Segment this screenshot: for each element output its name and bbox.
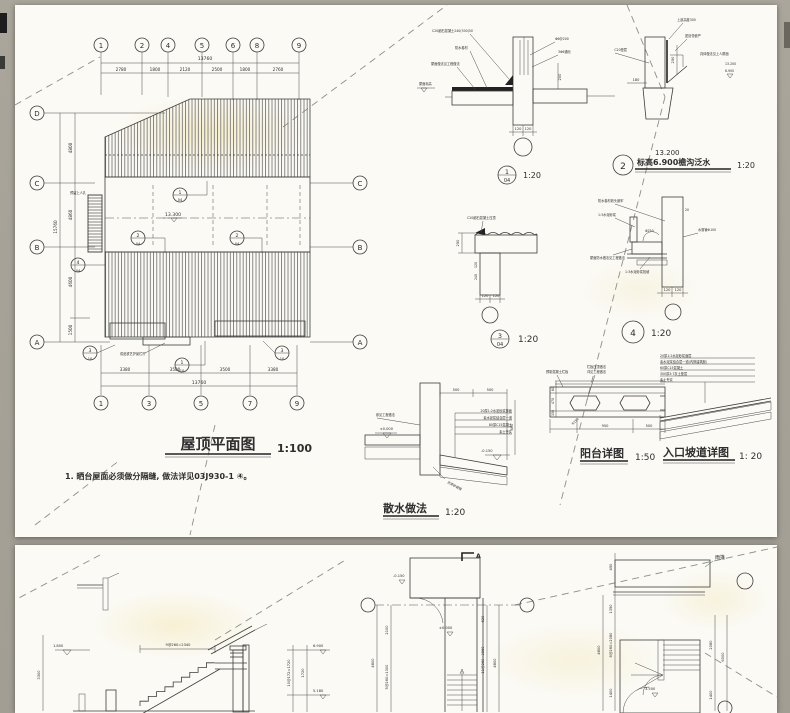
dim: 4800: [68, 142, 73, 153]
dim: 4800: [597, 645, 601, 655]
dim: 120: [664, 288, 672, 292]
dim: 2500: [212, 67, 223, 72]
callout-num: 4: [77, 260, 80, 266]
balcony-label: 详见工程做法: [587, 369, 606, 374]
roof-plan-note: 1. 晒台屋面必须做分隔缝, 做法详见03J930-1 ④。: [65, 471, 251, 481]
dim: 6000: [721, 652, 725, 662]
dim: 3380: [120, 367, 131, 372]
level-text: -0.150: [481, 449, 493, 453]
balcony-label: 预制混凝土栏板: [546, 369, 569, 374]
detail4-label: 防水卷材收头嵌牢: [598, 198, 624, 203]
dim: 3500: [220, 367, 231, 372]
dim: 180: [633, 78, 641, 82]
stair-plan-1: -0.150 ±0.000 A 2100 5@260=1300 4800 620…: [361, 553, 534, 712]
detail1-label: 防水卷材: [455, 45, 469, 50]
dim: 11@260=2860: [481, 646, 485, 674]
level-text: 13.300: [165, 212, 181, 218]
roof-plan-body: 预留上人孔 13.300 成品铁艺护窗栏杆: [70, 99, 310, 356]
roof-plan-scale: 1:100: [277, 442, 312, 455]
wall-fragment: [77, 573, 119, 610]
dim: 4800: [371, 658, 375, 668]
detail2-label: C20垫层: [614, 47, 627, 52]
callout-sheet: 10: [88, 357, 93, 361]
detail1-label: 屋面做法见工程做法: [431, 61, 460, 66]
layer-label: 20厚1:2水泥砂浆面层: [660, 353, 692, 358]
dim: 3380: [268, 367, 279, 372]
detail-3-coping: C20细石混凝土压顶 250 120 240 120 120 3 04 1:20: [456, 215, 538, 348]
level-text: ±0.000: [380, 427, 394, 431]
dim: 1350: [609, 604, 613, 614]
dim: 470: [551, 398, 555, 404]
detail2-title-line1: 13.200: [655, 149, 680, 157]
dim: 1800: [150, 67, 161, 72]
dim: 2780: [116, 67, 127, 72]
dim: 2080: [709, 640, 713, 650]
callout-num: 3: [281, 348, 284, 354]
photo-edge-mark: [0, 56, 5, 69]
detail-1-parapet: C20细石混凝土240(300)50 防水卷材 屋面做法见工程做法 屋面标高 Φ…: [417, 28, 615, 184]
axis-bubble: 7: [248, 400, 252, 408]
axis-bubble: 8: [255, 42, 259, 50]
dim: 1400: [709, 690, 713, 700]
axis-bubble: 5: [200, 42, 204, 50]
callout-num: 2: [137, 233, 140, 239]
callout-num: 2: [236, 233, 239, 239]
stair-plan-2: 雨篷 450 1350 8@260=2080 1400 4800 3.500 2…: [597, 553, 753, 713]
axis-bubble: 1: [99, 42, 103, 50]
dim: 4600: [68, 276, 73, 287]
detail3-callout: 3 04 1:20: [491, 330, 538, 348]
plan-level-mark: 13.300: [163, 212, 185, 222]
dim: 5@260=1300: [385, 664, 389, 690]
mid-section: 10@172=1720 1720 6.900 5.180: [230, 644, 330, 712]
detail2-label: 密封膏嵌严: [685, 33, 701, 38]
dim: 400: [510, 423, 514, 431]
detail1-label: 屋面标高: [419, 81, 432, 86]
callout-num: 1: [179, 190, 182, 196]
photo-edge-mark: [0, 13, 7, 33]
title-scale: 1:50: [635, 453, 655, 463]
axis-bubble: 3: [147, 400, 151, 408]
layer-label: 素土夯实: [660, 377, 673, 382]
detail2-label: 上返高度300: [677, 17, 696, 22]
dim: 10@172=1720: [287, 659, 291, 687]
callout-sheet: 04: [136, 242, 141, 246]
stair-section: 3300 1.800 9@260=2340: [37, 624, 267, 713]
dim: 120: [515, 127, 523, 131]
callout-sheet: 04: [497, 342, 503, 348]
ramp-layers: 20厚1:2水泥砂浆面层 素水泥浆结合层一道(内掺建筑胶) 60厚C15混凝土 …: [660, 353, 755, 403]
callout-sheet: 10: [280, 357, 285, 361]
dim-total-left: 15760: [53, 220, 58, 234]
level-text: 3.500: [645, 687, 656, 691]
dim: 2100: [385, 625, 389, 635]
drain-size: Φ250: [645, 229, 654, 233]
dim-total-top: 13760: [198, 56, 213, 62]
detail2-title: 2 13.200 标高6.900檐沟泛水 1:20: [613, 149, 755, 175]
detail4-label: 20: [685, 208, 689, 212]
detail1-callout: 1 04 1:20: [498, 166, 541, 184]
dim: 620: [481, 615, 485, 623]
canopy-label: 雨篷: [715, 554, 725, 561]
layer-label: 300厚3:7灰土垫层: [660, 371, 687, 376]
dim: 250: [456, 239, 460, 247]
rail-label: 成品铁艺护窗栏杆: [120, 351, 146, 356]
dim: 2120: [180, 67, 191, 72]
detail2-label: 具体做法见上人屋面: [700, 51, 729, 56]
level-text: 1.800: [53, 644, 64, 648]
roof-plan-right-axes: C B A: [310, 176, 367, 349]
dim: 120: [525, 127, 533, 131]
level-text: 13.200: [725, 62, 736, 66]
axis-bubble: A: [35, 339, 40, 347]
section-letter: A: [476, 553, 481, 560]
drawing-sheet-bottom: 3300 1.800 9@260=2340 10@172=1720 1720 6…: [15, 545, 777, 713]
dim: 2760: [273, 67, 284, 72]
title-scale: 1: 20: [739, 452, 762, 462]
axis-bubble: 5: [199, 400, 203, 408]
dim: 450: [609, 563, 613, 571]
sanshui-title: 散水做法 1:20: [383, 501, 465, 519]
detail1-label: 3Φ6通长: [558, 49, 572, 54]
callout-num: 3: [498, 333, 502, 340]
dim: 60: [551, 387, 555, 391]
title-text: 阳台详图: [580, 446, 624, 460]
layer-label: 60厚C15混凝土: [660, 365, 684, 370]
callout-num: 1: [181, 360, 184, 366]
axis-bubble: 9: [295, 400, 299, 408]
detail-2-gutter: 上返高度300 密封膏嵌严 具体做法见上人屋面 C20垫层 180 250 13…: [613, 17, 755, 175]
dim: 3300: [37, 670, 41, 680]
detail3-label: C20细石混凝土压顶: [467, 215, 496, 220]
drawing-sheet-top: 1 2 4 5 6 8 9 13760 2780 1800 2120 2500 …: [15, 5, 777, 537]
level-text: 5.180: [313, 689, 324, 693]
manhole-label: 预留上人孔: [70, 190, 87, 195]
dim: 240: [474, 274, 478, 280]
callout-sheet: 04: [504, 178, 510, 184]
balcony-label: 栏板压顶做法: [587, 364, 606, 369]
axis-bubble: D: [34, 110, 39, 118]
detail4-label: 水落管Φ100: [698, 227, 716, 232]
detail2-title-line2: 标高6.900檐沟泛水: [636, 157, 711, 167]
detail3-scale: 1:20: [518, 335, 538, 345]
ramp-detail: 20厚1:2水泥砂浆面层 素水泥浆结合层一道(内掺建筑胶) 60厚C15混凝土 …: [660, 353, 771, 463]
axis-bubble: B: [35, 244, 40, 252]
callout-num: 4: [630, 329, 636, 339]
detail2-scale: 1:20: [737, 161, 755, 170]
section-mark: A: [462, 553, 481, 561]
level-text: 6.900: [313, 644, 324, 648]
axis-bubble: 6: [231, 42, 236, 50]
detail4-scale: 1:20: [651, 329, 671, 339]
dim: 500: [646, 424, 654, 428]
title-scale: 1:20: [445, 508, 465, 518]
photo-edge-mark: [784, 22, 790, 48]
radius-label: R150: [571, 417, 580, 426]
roof-plan-top-axes: 1 2 4 5 6 8 9 13760 2780 1800 2120 2500 …: [94, 38, 306, 100]
level-text: 6.900: [725, 69, 734, 73]
dim: 250: [671, 56, 675, 64]
dim: 4800: [493, 658, 497, 668]
callout-num: 2: [620, 162, 626, 172]
axis-bubble: A: [358, 339, 363, 347]
dim: 1400: [609, 688, 613, 698]
dim: 500: [453, 388, 461, 392]
balcony-detail: 预制混凝土栏板 栏板压顶做法 详见工程做法 60 470 150 R150 95…: [546, 364, 665, 464]
layer-label: 素水泥浆结合层一道: [483, 415, 512, 420]
dim: 200: [558, 73, 562, 81]
axis-bubble: 1: [99, 400, 103, 408]
detail2-levels: 13.200 6.900: [725, 62, 736, 78]
axis-bubble: 4: [166, 42, 171, 50]
dim: 950: [602, 424, 610, 428]
dim-total-bottom: 13760: [192, 380, 207, 386]
title-text: 入口坡道详图: [663, 445, 729, 459]
callout-sheet: 04: [76, 269, 81, 273]
detail4-label: 屋面防水做法见工程做法: [590, 255, 625, 260]
callout-sheet: 04: [178, 198, 183, 202]
dim: 150: [551, 410, 555, 416]
detail-4-balcony-drain: Φ250 防水卷材收头嵌牢 1:3水泥砂浆 屋面防水做法见工程做法 1:3水泥砂…: [590, 197, 716, 343]
callout-num: 1: [505, 169, 509, 176]
detail1-scale: 1:20: [523, 171, 541, 180]
axis-bubble: C: [35, 180, 40, 188]
dim: 8@260=2080: [609, 632, 613, 658]
crease-lines: [15, 547, 777, 697]
callout-num: 3: [89, 348, 92, 354]
balcony-title: 阳台详图 1:50: [580, 446, 655, 464]
dim: 1800: [240, 67, 251, 72]
dim: 120: [493, 294, 501, 298]
dim: 500: [487, 388, 495, 392]
axis-bubble: B: [358, 244, 363, 252]
callout-sheet: 10: [180, 369, 185, 373]
axis-bubble: 2: [140, 42, 144, 50]
dim: 120: [474, 262, 478, 268]
level-text: -0.150: [393, 574, 405, 578]
sanshui-bottom-label: 沥青砂嵌缝: [447, 479, 464, 491]
detail1-label: C20细石混凝土240(300)50: [432, 28, 473, 33]
sanshui-detail: 500 500 20厚1:2水泥砂浆抹面 素水泥浆结合层一道 80厚C15混凝土…: [365, 383, 515, 519]
layer-label: 20厚1:2水泥砂浆抹面: [481, 408, 513, 413]
level-text: ±0.000: [439, 626, 453, 630]
roof-plan-title: 屋顶平面图: [180, 435, 255, 453]
detail4-label: 1:3水泥砂浆: [598, 212, 617, 217]
layer-label: 素水泥浆结合层一道(内掺建筑胶): [660, 359, 707, 364]
dim: 1720: [301, 668, 305, 678]
dim: 9@260=2340: [166, 643, 192, 647]
callout-sheet: 04: [235, 242, 240, 246]
axis-bubble: C: [358, 180, 363, 188]
sanshui-left-label: 参见工程做法: [376, 412, 395, 417]
axis-bubble: 9: [297, 42, 301, 50]
title-text: 散水做法: [383, 501, 427, 515]
dim: 3500: [170, 367, 181, 372]
dim: 120: [482, 294, 490, 298]
dim: 1500: [68, 324, 73, 335]
ramp-title: 入口坡道详图 1: 20: [663, 445, 762, 463]
detail4-label: 1:3水泥砂浆找坡: [625, 269, 650, 274]
detail4-callout: 4 1:20: [622, 321, 671, 343]
roof-plan: 1 2 4 5 6 8 9 13760 2780 1800 2120 2500 …: [30, 38, 367, 481]
dim: 120: [675, 288, 683, 292]
dim: 4860: [68, 209, 73, 220]
detail1-label: Φ6@200: [555, 37, 569, 41]
